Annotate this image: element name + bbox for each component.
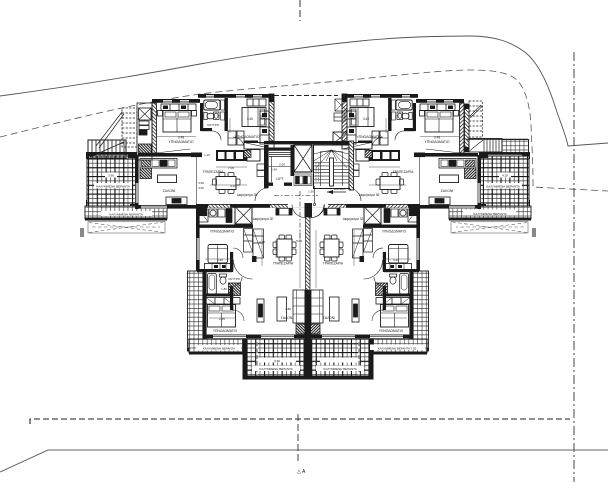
svg-text:4.25: 4.25 bbox=[259, 240, 265, 244]
svg-text:7.05: 7.05 bbox=[228, 166, 234, 170]
svg-text:ΚΑΛΥΜΜΕΝΗ ΒΕΡΑΝΤΑ: ΚΑΛΥΜΜΕΝΗ ΒΕΡΑΝΤΑ bbox=[486, 185, 520, 189]
svg-text:ΚΑΛΥΜΜΕΝΗ ΒΕΡΑΝΤΑ: ΚΑΛΥΜΜΕΝΗ ΒΕΡΑΝΤΑ bbox=[203, 347, 235, 351]
svg-text:3.90: 3.90 bbox=[108, 174, 114, 178]
svg-text:ΚΑΛΥΜΜΕΝΗ ΒΕΡΑΝΤΑ: ΚΑΛΥΜΜΕΝΗ ΒΕΡΑΝΤΑ bbox=[259, 367, 293, 371]
svg-text:ΥΠΝΟΔΩΜΑΤΙΟ: ΥΠΝΟΔΩΜΑΤΙΟ bbox=[382, 230, 407, 234]
svg-text:ΚΑΛΥΜΜΕΝΗ ΒΕΡΑΝΤΑ 7.50: ΚΑΛΥΜΜΕΝΗ ΒΕΡΑΝΤΑ 7.50 bbox=[378, 347, 417, 351]
svg-text:ΤΡΑΠΕΖΑΡΙΑ: ΤΡΑΠΕΖΑΡΙΑ bbox=[203, 170, 225, 174]
svg-text:2.00: 2.00 bbox=[279, 163, 285, 167]
svg-text:Διαμέρισμα 32: Διαμέρισμα 32 bbox=[343, 217, 364, 221]
svg-text:ΥΠΝΟΔΩΜΑΤΙΟ: ΥΠΝΟΔΩΜΑΤΙΟ bbox=[213, 329, 238, 333]
svg-text:ΥΠΝΟΔΩΜΑΤΙΟ: ΥΠΝΟΔΩΜΑΤΙΟ bbox=[424, 140, 449, 144]
svg-text:3.80: 3.80 bbox=[285, 307, 291, 311]
svg-text:ΤΡΑΠΕΖΑΡΙΑ: ΤΡΑΠΕΖΑΡΙΑ bbox=[393, 170, 415, 174]
svg-text:△ A: △ A bbox=[297, 469, 306, 475]
svg-text:ΣΑΛΟΝΙ: ΣΑΛΟΝΙ bbox=[441, 189, 454, 193]
svg-text:3.90: 3.90 bbox=[274, 359, 280, 363]
svg-text:4.20: 4.20 bbox=[502, 174, 508, 178]
svg-text:2.45: 2.45 bbox=[219, 317, 225, 321]
svg-text:ΣΑΛΟΝΙ: ΣΑΛΟΝΙ bbox=[163, 189, 176, 193]
svg-text:LIFT: LIFT bbox=[276, 177, 284, 181]
svg-text:4.20: 4.20 bbox=[230, 184, 236, 188]
svg-text:ΚΑΛΥΜΜΕΝΗ ΒΕΡΑΝΤΑ: ΚΑΛΥΜΜΕΝΗ ΒΕΡΑΝΤΑ bbox=[323, 367, 357, 371]
svg-text:ΤΡΑΠΕΖΑΡΙΑ: ΤΡΑΠΕΖΑΡΙΑ bbox=[323, 262, 344, 266]
svg-text:5.00: 5.00 bbox=[296, 239, 302, 243]
svg-text:3.40: 3.40 bbox=[393, 258, 399, 262]
svg-text:ΤΡΑΠΕΖΑΡΙΑ: ΤΡΑΠΕΖΑΡΙΑ bbox=[273, 262, 294, 266]
svg-text:ΛΟΥΤΡΟ: ΛΟΥΤΡΟ bbox=[228, 277, 241, 281]
svg-text:ΛΟΥΤΡΟ: ΛΟΥΤΡΟ bbox=[207, 123, 220, 127]
svg-text:3.48: 3.48 bbox=[434, 136, 440, 140]
svg-text:ΚΑΛΥΜΜΕΝΗ ΒΕΡΑΝΤΑ: ΚΑΛΥΜΜΕΝΗ ΒΕΡΑΝΤΑ bbox=[109, 213, 143, 217]
svg-text:Διαμέρισμα 36: Διαμέρισμα 36 bbox=[359, 193, 380, 197]
svg-text:2.45: 2.45 bbox=[271, 168, 277, 172]
svg-text:ΥΠΝΟΔΩΜΑΤΙΟ: ΥΠΝΟΔΩΜΑΤΙΟ bbox=[210, 230, 235, 234]
svg-text:3.48: 3.48 bbox=[178, 136, 184, 140]
svg-text:3.40: 3.40 bbox=[363, 117, 369, 121]
svg-text:Διαμέρισμα 35: Διαμέρισμα 35 bbox=[237, 193, 258, 197]
svg-text:ΣΑΛΟΝΙ: ΣΑΛΟΝΙ bbox=[323, 316, 335, 320]
svg-text:ΥΠΝΟΔΩΜΑΤΙΟ: ΥΠΝΟΔΩΜΑΤΙΟ bbox=[234, 135, 259, 139]
svg-text:ΥΠΝΟΔΩΜΑΤΙΟ: ΥΠΝΟΔΩΜΑΤΙΟ bbox=[379, 329, 404, 333]
svg-text:3.40: 3.40 bbox=[247, 117, 253, 121]
svg-text:1.80: 1.80 bbox=[221, 287, 227, 291]
svg-text:ΚΑΛΥΜΜΕΝΗ ΒΕΡΑΝΤΑ: ΚΑΛΥΜΜΕΝΗ ΒΕΡΑΝΤΑ bbox=[473, 212, 507, 216]
svg-text:ΚΑΛΥΜΜΕΝΗ ΒΕΡΑΝΤΑ: ΚΑΛΥΜΜΕΝΗ ΒΕΡΑΝΤΑ bbox=[96, 185, 130, 189]
svg-text:Διαμέρισμα 30: Διαμέρισμα 30 bbox=[253, 217, 274, 221]
svg-text:1.10: 1.10 bbox=[204, 153, 210, 157]
svg-text:3.00: 3.00 bbox=[198, 181, 204, 185]
svg-text:3.40: 3.40 bbox=[217, 258, 223, 262]
svg-text:ΥΠΝΟΔΩΜΑΤΙΟ: ΥΠΝΟΔΩΜΑΤΙΟ bbox=[356, 135, 381, 139]
svg-text:1.50: 1.50 bbox=[308, 190, 314, 194]
svg-text:ΥΠΝΟΔΩΜΑΤΙΟ: ΥΠΝΟΔΩΜΑΤΙΟ bbox=[168, 140, 193, 144]
svg-text:ΣΑΛΟΝΙ: ΣΑΛΟΝΙ bbox=[281, 316, 293, 320]
svg-text:ΕΙΣΟΔΟΣ: ΕΙΣΟΔΟΣ bbox=[334, 187, 346, 191]
svg-text:4.00: 4.00 bbox=[198, 186, 204, 190]
